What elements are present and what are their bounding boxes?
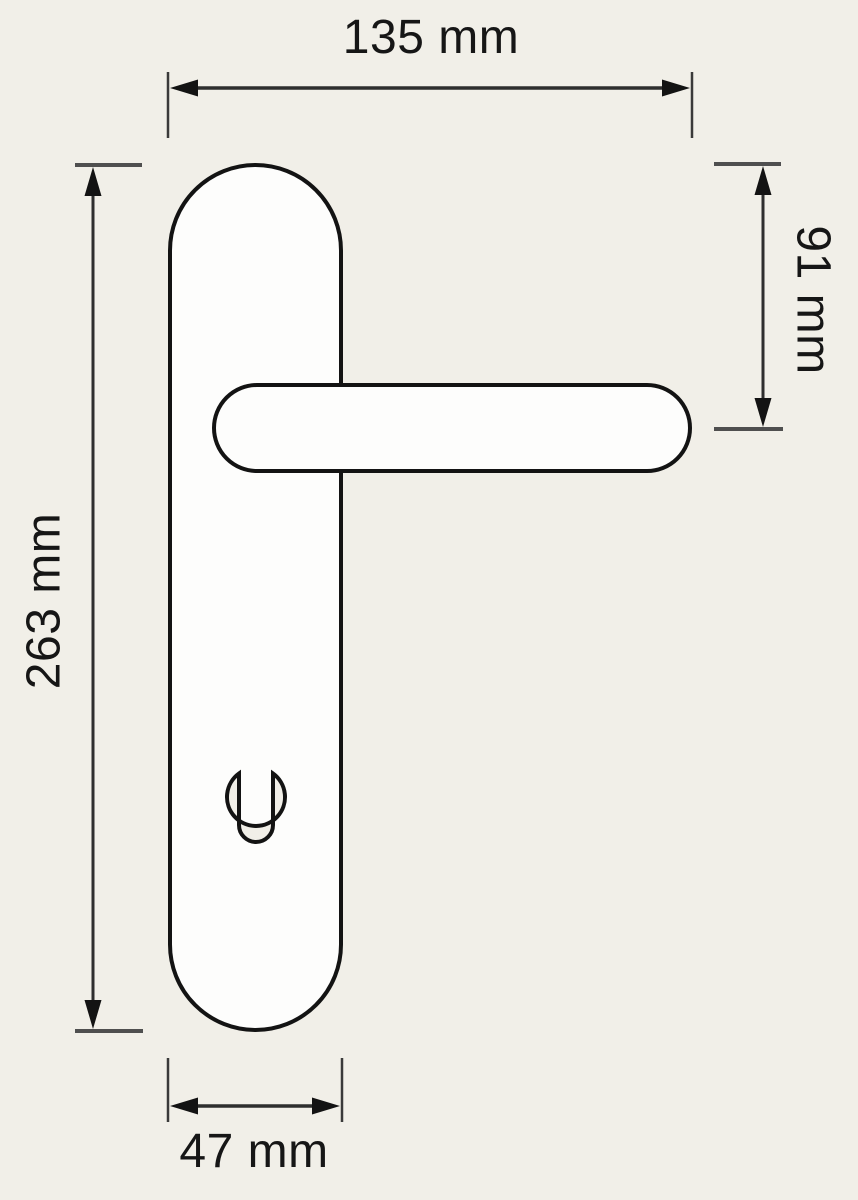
door-handle-drawing (0, 0, 858, 1200)
dimension-right (714, 164, 783, 429)
arrowhead-right-icon (662, 80, 690, 97)
arrowhead-right-icon (312, 1098, 340, 1115)
dimension-top (168, 72, 692, 138)
dimension-label-plate-width: 47 mm (179, 1126, 328, 1179)
dimension-bottom (168, 1058, 342, 1122)
dimension-label-handle-axis-height: 91 mm (786, 225, 839, 374)
arrowhead-down-icon (85, 1000, 102, 1029)
arrowhead-left-icon (170, 1098, 198, 1115)
drawing-canvas: 135 mm 91 mm 263 mm 47 mm (0, 0, 858, 1200)
dimension-left (75, 165, 143, 1031)
arrowhead-left-icon (170, 80, 198, 97)
dimension-label-plate-height: 263 mm (19, 513, 72, 689)
arrowhead-up-icon (755, 166, 772, 195)
dimension-label-overall-width: 135 mm (343, 12, 519, 65)
arrowhead-up-icon (85, 167, 102, 196)
arrowhead-down-icon (755, 398, 772, 427)
lever-handle-outline (214, 385, 690, 471)
backplate-outline (170, 165, 341, 1030)
